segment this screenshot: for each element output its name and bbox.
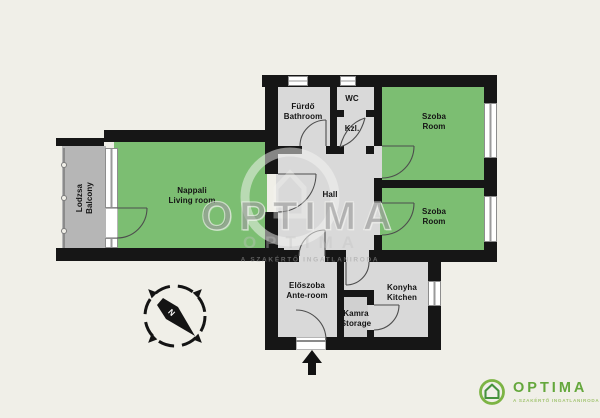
floorplan: N Lodzsa Balcony Nappali Living room Für… [0, 0, 600, 418]
room-name-en: Storage [341, 319, 372, 329]
room-name-hu: Fürdő [284, 102, 323, 112]
room-label-room2: Szoba Room [422, 207, 446, 227]
room-name-en: Room [422, 122, 446, 132]
optima-house-icon [477, 377, 507, 407]
room-name-en: Room [422, 217, 446, 227]
room-name-en: Bathroom [284, 112, 323, 122]
room-label-storage: Kamra Storage [341, 309, 372, 329]
room-label-room1: Szoba Room [422, 112, 446, 132]
room-name-en: Ante-room [286, 291, 327, 301]
room-label-wc: WC [345, 94, 359, 104]
logo-name: OPTIMA [513, 381, 599, 396]
room-name-hu: Lodzsa [75, 182, 85, 214]
room-name-en: Kitchen [387, 293, 417, 303]
room-name-hu: Szoba [422, 112, 446, 122]
room-label-anteroom: Előszoba Ante-room [286, 281, 327, 301]
room-label-bathroom: Fürdő Bathroom [284, 102, 323, 122]
room-name-en: Balcony [85, 182, 95, 214]
logo-tagline: A SZAKÉRTŐ INGATLANIRODA [513, 398, 599, 403]
room-name-en: Living room [169, 196, 216, 206]
room-label-hall: Hall [322, 190, 337, 200]
room-label-kitchen: Konyha Kitchen [387, 283, 417, 303]
optima-logo: OPTIMA A SZAKÉRTŐ INGATLANIRODA [477, 377, 599, 407]
room-name-hu: Kzl. [345, 124, 360, 134]
room-label-balcony: Lodzsa Balcony [75, 182, 95, 214]
room-label-kzl: Kzl. [345, 124, 360, 134]
room-name-hu: WC [345, 94, 359, 104]
room-name-hu: Szoba [422, 207, 446, 217]
room-name-hu: Kamra [341, 309, 372, 319]
room-label-living: Nappali Living room [169, 186, 216, 206]
room-name-hu: Hall [322, 190, 337, 200]
room-name-hu: Előszoba [286, 281, 327, 291]
room-name-hu: Konyha [387, 283, 417, 293]
optima-logo-text: OPTIMA A SZAKÉRTŐ INGATLANIRODA [513, 381, 599, 403]
room-name-hu: Nappali [169, 186, 216, 196]
room-labels: Lodzsa Balcony Nappali Living room Fürdő… [0, 0, 600, 418]
